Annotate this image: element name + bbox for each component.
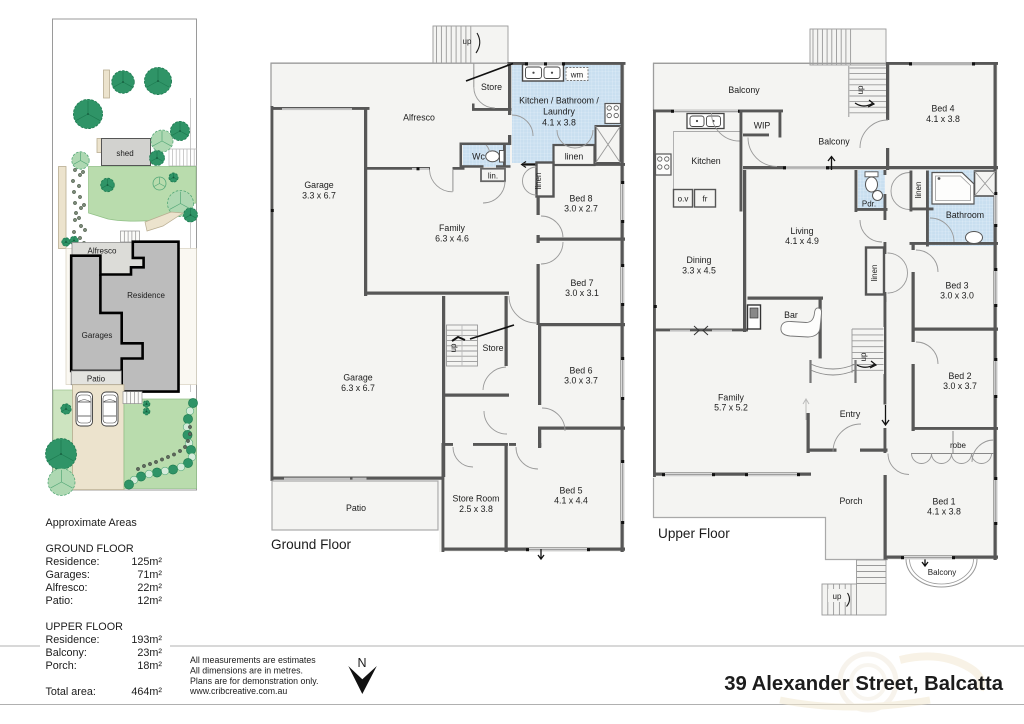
svg-text:up: up (463, 37, 472, 46)
svg-text:Bed 4: Bed 4 (932, 104, 955, 114)
svg-text:3.0 x 3.7: 3.0 x 3.7 (943, 381, 977, 391)
svg-text:robe: robe (950, 441, 967, 450)
svg-text:Ground Floor: Ground Floor (271, 537, 352, 552)
svg-text:GROUND FLOOR: GROUND FLOOR (46, 543, 134, 555)
svg-text:o.v: o.v (678, 195, 689, 204)
svg-text:linen: linen (565, 152, 584, 162)
svg-text:4.1 x 4.9: 4.1 x 4.9 (785, 236, 819, 246)
svg-text:23m²: 23m² (137, 647, 162, 659)
svg-text:up: up (859, 352, 868, 361)
svg-text:Alfresco: Alfresco (403, 113, 435, 123)
svg-text:Patio: Patio (346, 503, 366, 513)
svg-text:193m²: 193m² (131, 634, 162, 646)
svg-text:3.0 x 2.7: 3.0 x 2.7 (564, 204, 598, 214)
svg-text:Residence:: Residence: (46, 634, 100, 646)
svg-text:3.0 x 3.1: 3.0 x 3.1 (565, 288, 599, 298)
svg-text:12m²: 12m² (137, 595, 162, 607)
svg-text:Family: Family (718, 392, 745, 402)
svg-text:2.5 x 3.8: 2.5 x 3.8 (459, 504, 493, 514)
svg-text:All measurements are estimates: All measurements are estimates (190, 655, 316, 665)
svg-text:Alfresco:: Alfresco: (46, 582, 88, 594)
svg-text:6.3 x 4.6: 6.3 x 4.6 (435, 233, 469, 243)
svg-text:Approximate Areas: Approximate Areas (46, 517, 138, 529)
svg-text:Residence:: Residence: (46, 556, 100, 568)
svg-text:Bed 7: Bed 7 (571, 278, 594, 288)
svg-text:Living: Living (791, 226, 814, 236)
svg-text:Kitchen: Kitchen (691, 156, 720, 166)
svg-text:Bar: Bar (784, 310, 798, 320)
svg-text:www.cribcreative.com.au: www.cribcreative.com.au (189, 686, 287, 696)
svg-text:125m²: 125m² (131, 556, 162, 568)
svg-text:Alfresco: Alfresco (88, 247, 117, 256)
svg-text:Bed 2: Bed 2 (949, 371, 972, 381)
svg-text:shed: shed (116, 149, 133, 158)
svg-text:Family: Family (439, 223, 466, 233)
svg-text:Entry: Entry (840, 409, 861, 419)
svg-text:Pdr.: Pdr. (862, 200, 876, 209)
svg-text:Store Room: Store Room (453, 494, 500, 504)
svg-text:up: up (856, 85, 865, 94)
svg-text:Balcony: Balcony (818, 137, 850, 147)
svg-text:Total area:: Total area: (46, 686, 96, 698)
svg-text:5.7 x 5.2: 5.7 x 5.2 (714, 403, 748, 413)
svg-text:3.0 x 3.0: 3.0 x 3.0 (940, 291, 974, 301)
svg-text:464m²: 464m² (131, 686, 162, 698)
svg-text:Patio: Patio (87, 375, 106, 384)
svg-text:WIP: WIP (754, 121, 771, 131)
svg-text:Bathroom: Bathroom (946, 210, 984, 220)
svg-text:Store: Store (482, 343, 503, 353)
svg-text:22m²: 22m² (137, 582, 162, 594)
svg-text:Bed 6: Bed 6 (570, 366, 593, 376)
svg-text:linen: linen (534, 173, 543, 190)
svg-text:linen: linen (914, 182, 923, 199)
svg-text:4.1 x 3.8: 4.1 x 3.8 (927, 507, 961, 517)
svg-text:up: up (449, 343, 458, 352)
svg-text:Balcony: Balcony (728, 85, 760, 95)
svg-text:Garages:: Garages: (46, 569, 90, 581)
svg-text:Bed 5: Bed 5 (560, 485, 583, 495)
svg-text:Garages: Garages (82, 331, 113, 340)
svg-text:Bed 3: Bed 3 (946, 280, 969, 290)
svg-text:6.3 x 6.7: 6.3 x 6.7 (341, 383, 375, 393)
svg-text:Patio:: Patio: (46, 595, 74, 607)
svg-text:All dimensions are in metres.: All dimensions are in metres. (190, 665, 303, 675)
svg-text:Bed 8: Bed 8 (570, 194, 593, 204)
svg-text:Porch:: Porch: (46, 660, 77, 672)
svg-text:UPPER FLOOR: UPPER FLOOR (46, 621, 124, 633)
svg-text:wm: wm (570, 71, 584, 80)
svg-text:3.0 x 3.7: 3.0 x 3.7 (564, 376, 598, 386)
svg-text:4.1 x 3.8: 4.1 x 3.8 (926, 114, 960, 124)
svg-text:71m²: 71m² (137, 569, 162, 581)
svg-text:Wc: Wc (472, 152, 485, 162)
svg-text:fr: fr (703, 195, 708, 204)
svg-text:Plans are for demonstration on: Plans are for demonstration only. (190, 676, 318, 686)
svg-text:Laundry: Laundry (543, 107, 575, 117)
svg-text:39 Alexander Street, Balcatta: 39 Alexander Street, Balcatta (724, 673, 1004, 695)
svg-text:Dining: Dining (687, 255, 712, 265)
svg-text:linen: linen (870, 265, 879, 282)
svg-text:Garage: Garage (304, 180, 333, 190)
svg-text:Garage: Garage (343, 373, 372, 383)
svg-text:N: N (357, 656, 366, 670)
svg-text:Porch: Porch (840, 496, 863, 506)
svg-text:Balcony: Balcony (928, 568, 956, 577)
svg-text:Bed 1: Bed 1 (933, 497, 956, 507)
svg-text:Store: Store (481, 82, 502, 92)
svg-text:up: up (833, 592, 842, 601)
svg-text:Residence: Residence (127, 291, 165, 300)
svg-text:3.3 x 6.7: 3.3 x 6.7 (302, 190, 336, 200)
svg-text:Kitchen / Bathroom /: Kitchen / Bathroom / (519, 96, 599, 106)
svg-text:4.1 x 3.8: 4.1 x 3.8 (542, 118, 576, 128)
svg-text:lin.: lin. (488, 172, 498, 181)
svg-text:4.1 x 4.4: 4.1 x 4.4 (554, 496, 588, 506)
svg-text:3.3 x 4.5: 3.3 x 4.5 (682, 265, 716, 275)
svg-text:Upper Floor: Upper Floor (658, 526, 730, 541)
svg-text:18m²: 18m² (137, 660, 162, 672)
svg-text:Balcony:: Balcony: (46, 647, 87, 659)
